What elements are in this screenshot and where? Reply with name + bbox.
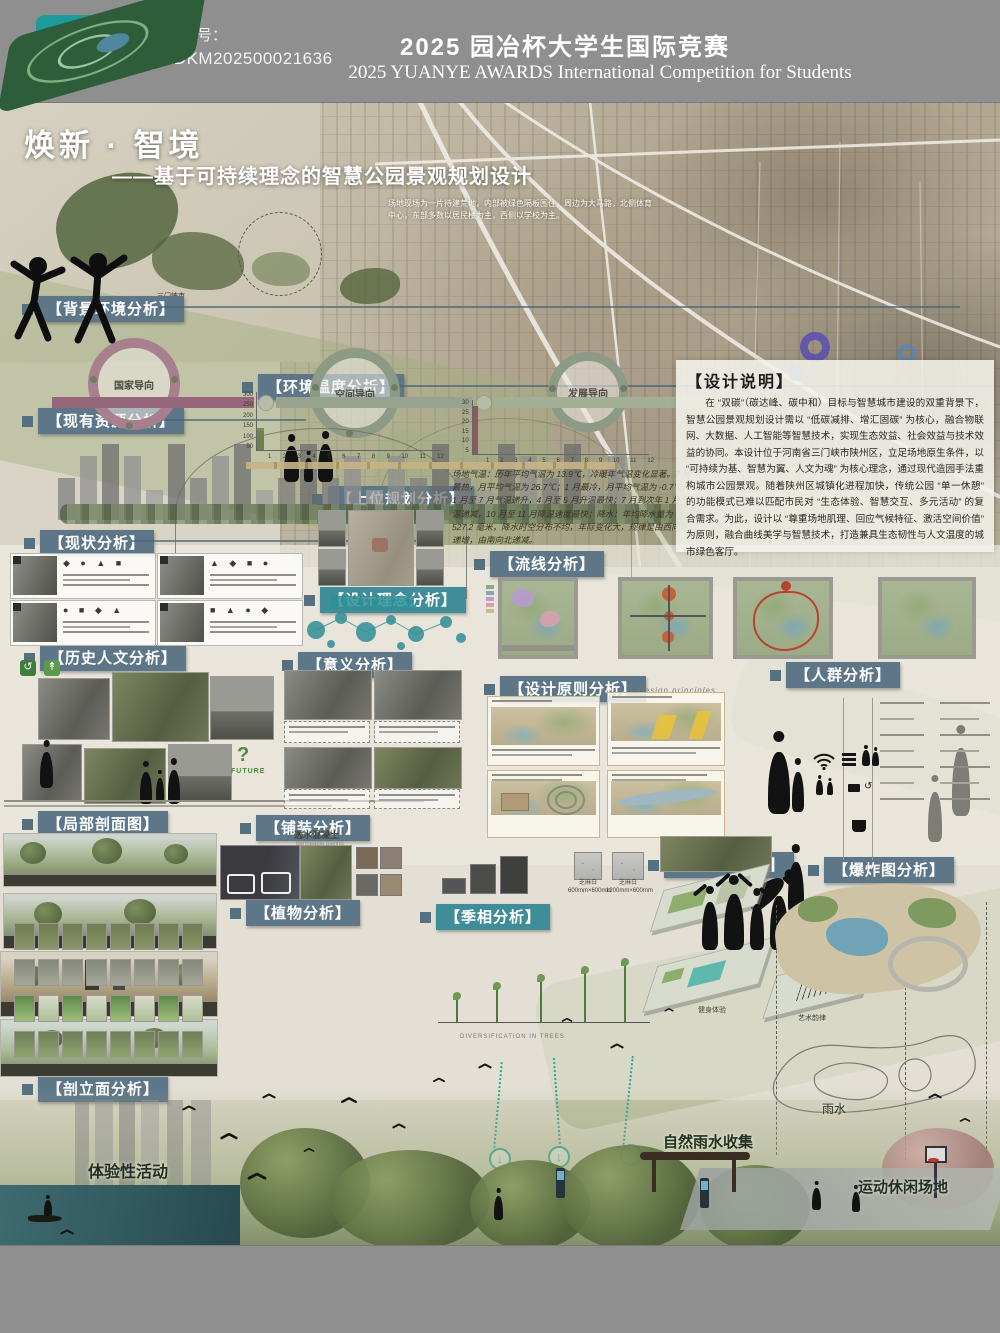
plan-nodes: [618, 577, 713, 659]
competition-title-cn: 2025 园冶杯大学生国际竞赛: [300, 27, 830, 62]
plants-row-trees: [14, 923, 203, 950]
laptop-icon: [848, 784, 860, 792]
person-silhouette: [168, 770, 180, 804]
chart-bar: [257, 448, 264, 450]
annotation-rain-collect: 自然雨水收集: [663, 1131, 753, 1152]
status-panel-2: ● ■ ◆ ▲: [10, 600, 156, 646]
boatman-silhouette: [44, 1200, 52, 1216]
plant-thumbnail: [110, 923, 131, 950]
stone-size: 1200mm×600mm: [606, 888, 650, 896]
status-panel-4: ■ ▲ ● ◆: [157, 600, 303, 646]
divider: [872, 698, 873, 860]
stone-name: 芝麻白: [606, 880, 650, 888]
paving-swatch: [356, 874, 378, 896]
stroller-icon: [827, 782, 833, 795]
stone-name: 芝麻白: [568, 880, 608, 888]
crowd-label-column: [880, 702, 924, 814]
upper-plan-photo: [318, 549, 346, 586]
design-note-body: 在 “双碳”（碳达峰、碳中和）目标与智慧城市建设的双重背景下，智慧公园景观规划设…: [686, 396, 984, 561]
river-band: [617, 786, 718, 808]
section-seasons-analysis: 【季相分析】: [420, 904, 550, 930]
precipitation-chart: 30025020015010050: [243, 392, 441, 460]
bike-lane-photo: [220, 845, 300, 900]
basketball-ring: [928, 1158, 939, 1162]
design-note-heading: 【设计说明】: [686, 368, 984, 392]
meaning-caption: [374, 789, 460, 809]
upper-plan-photo: [416, 549, 444, 586]
meaning-caption: [284, 721, 370, 743]
recycle-icon: ↺: [864, 781, 872, 792]
crowd-label-column: [940, 702, 990, 814]
principle-panel-4: [607, 770, 725, 838]
chart-bar: [473, 452, 478, 454]
plan-masterplan: [878, 577, 976, 659]
explode-layer-plan: [768, 878, 993, 1003]
timeline-segment: [52, 397, 254, 408]
principle-render: [491, 707, 596, 745]
principle-panel-3: [487, 770, 600, 838]
paver-sample: [442, 878, 466, 894]
history-photo: [84, 748, 166, 804]
granite-stone-swatch: [574, 852, 602, 880]
people-icon: [872, 752, 879, 766]
plant-icon: ↟: [44, 660, 60, 676]
poster-subtitle: ——基于可持续理念的智慧公园景观规划设计: [112, 160, 532, 189]
plant-thumbnail: [86, 923, 107, 950]
highlight-patch: [651, 715, 677, 739]
temp-bars: [472, 400, 649, 455]
pedestrian-stencil: [261, 872, 291, 894]
poster-title: 焕新 · 智境: [24, 120, 204, 165]
wifi-icon: [812, 752, 836, 770]
seasons-axis: [438, 1022, 650, 1023]
paving-swatch: [380, 874, 402, 896]
plants-row-grasses: [14, 1031, 203, 1058]
climate-description: 场地气温：历年平均气温为 13.9℃，冷暖年气温变化显著。7 月最热，月平均气温…: [452, 468, 692, 547]
bike-stencil: [227, 874, 255, 894]
plant-thumbnail: [158, 923, 179, 950]
recycle-icon: ↺: [20, 660, 36, 676]
paver-sample: [470, 864, 496, 894]
temp-month-axis: 123456789101112: [486, 458, 654, 464]
ring-node: [90, 376, 97, 383]
principle-panel-1: [487, 696, 600, 766]
principle-panel-2: [607, 692, 725, 766]
paver-sample: [500, 856, 528, 894]
site-dashed-circle: [238, 212, 322, 296]
section-rule: [160, 306, 960, 308]
plan-legend: [486, 585, 494, 613]
history-photo: [210, 676, 274, 740]
cyclists-photo: [300, 845, 352, 900]
upper-plan-site-patch: [372, 538, 388, 552]
node-label: 健身体验: [698, 1006, 726, 1015]
plants-row-flowers: [14, 995, 203, 1022]
granite-stone-swatch: [612, 852, 644, 880]
person-silhouette: [156, 778, 164, 802]
plant-thumbnail: [134, 923, 155, 950]
precip-bars: [256, 392, 441, 451]
upper-plan-photo: [318, 510, 346, 547]
stone-size: 600mm×600mm: [568, 888, 608, 896]
history-photo: [38, 678, 110, 740]
child-icon: [816, 780, 823, 795]
plan-zoning: [498, 577, 578, 659]
status-panel-3: ▲ ◆ ■ ●: [157, 553, 303, 599]
walker-silhouette: [812, 1188, 821, 1210]
section-crowd-analysis: 【人群分析】: [770, 662, 900, 688]
future-question-mark: ?: [237, 744, 249, 767]
temp-y-axis: 30252015105: [462, 400, 472, 454]
competition-poster: y YUANYE AWARDS 园 冶 杯 报名序号： LADKM2025000…: [0, 0, 1000, 1333]
paving-material-label: 透水混凝土: [294, 830, 339, 842]
annotation-sport: 运动休闲场地: [858, 1176, 948, 1197]
meaning-caption: [374, 721, 460, 743]
map-marker-purple: [800, 332, 830, 362]
upper-plan-photo: [416, 510, 444, 547]
footer-bar: [0, 1245, 1000, 1333]
annotation-rain: 雨水: [822, 1100, 846, 1117]
future-label: FUTURE: [231, 768, 265, 775]
annotation-experience: 体验性活动: [88, 1158, 168, 1182]
meaning-caption: [284, 789, 370, 809]
seasons-caption: DIVERSIFICATION IN TREES: [460, 1034, 565, 1042]
paving-swatch: [380, 847, 402, 869]
plan-circulation-loop: [733, 577, 833, 659]
section-strip-1: [3, 833, 217, 887]
bag-icon: [852, 820, 866, 832]
history-photo: [112, 672, 209, 742]
meaning-photo: [374, 670, 462, 720]
boat-silhouette: [28, 1215, 62, 1222]
temperature-chart: 30252015105: [462, 400, 649, 464]
plant-thumbnail: [182, 923, 203, 950]
bird-icon: [182, 1104, 196, 1111]
meaning-photo: [374, 747, 462, 789]
status-caption: [63, 574, 149, 589]
plant-thumbnail: [62, 923, 83, 950]
plant-thumbnail: [14, 923, 35, 950]
concept-caption-box: [330, 596, 414, 609]
meaning-photo: [284, 747, 372, 789]
design-note-panel: 【设计说明】 在 “双碳”（碳达峰、碳中和）目标与智慧城市建设的双重背景下，智慧…: [676, 360, 994, 552]
smart-kiosk: [556, 1168, 565, 1198]
status-panel-1: ◆ ● ▲ ■: [10, 553, 156, 599]
paving-swatch: [356, 847, 378, 869]
smart-kiosk: [700, 1178, 709, 1208]
path-ring: [888, 936, 968, 992]
meaning-photo: [284, 670, 372, 720]
competition-title-en: 2025 YUANYE AWARDS International Competi…: [250, 62, 950, 84]
pavilion-beam: [640, 1152, 750, 1160]
plaza-path: [680, 1168, 1000, 1230]
section-plants-analysis: 【植物分析】: [230, 900, 360, 926]
dancer-silhouettes: [0, 248, 150, 353]
precip-y-axis: 30025020015010050: [243, 392, 256, 450]
list-icon: [842, 753, 856, 756]
site-description-note: 场地现场为一片待建荒地，内部被绿色隔板围住，周边为大马路，北侧体育中心，东部多数…: [388, 198, 653, 222]
pavilion-sketch: [501, 793, 529, 811]
plants-row-shrubs: [14, 959, 203, 986]
precip-month-axis: 123456789101112: [268, 454, 444, 460]
divider: [843, 698, 844, 860]
plant-sprig: [456, 996, 458, 1022]
people-icon: [862, 750, 870, 766]
status-icons: ◆ ● ▲ ■: [63, 558, 125, 569]
plant-thumbnail: [38, 923, 59, 950]
